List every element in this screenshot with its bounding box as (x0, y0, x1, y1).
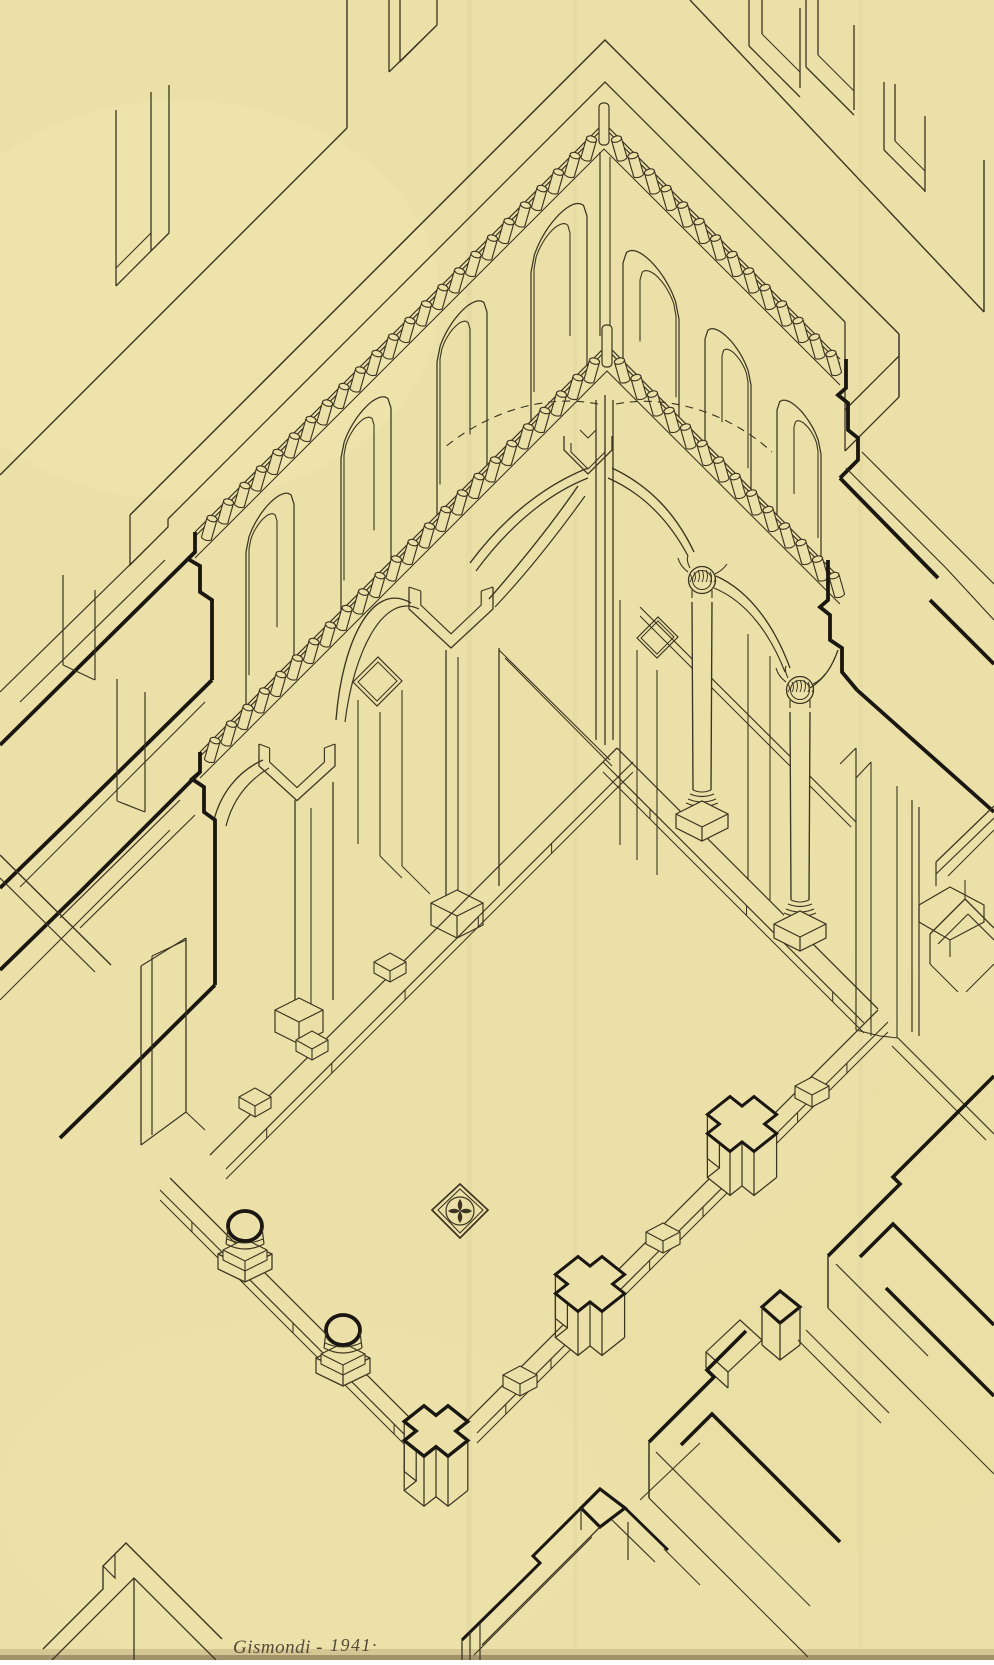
svg-text:1941·: 1941· (330, 1635, 378, 1655)
svg-text:Gismondi -: Gismondi - (233, 1637, 323, 1658)
